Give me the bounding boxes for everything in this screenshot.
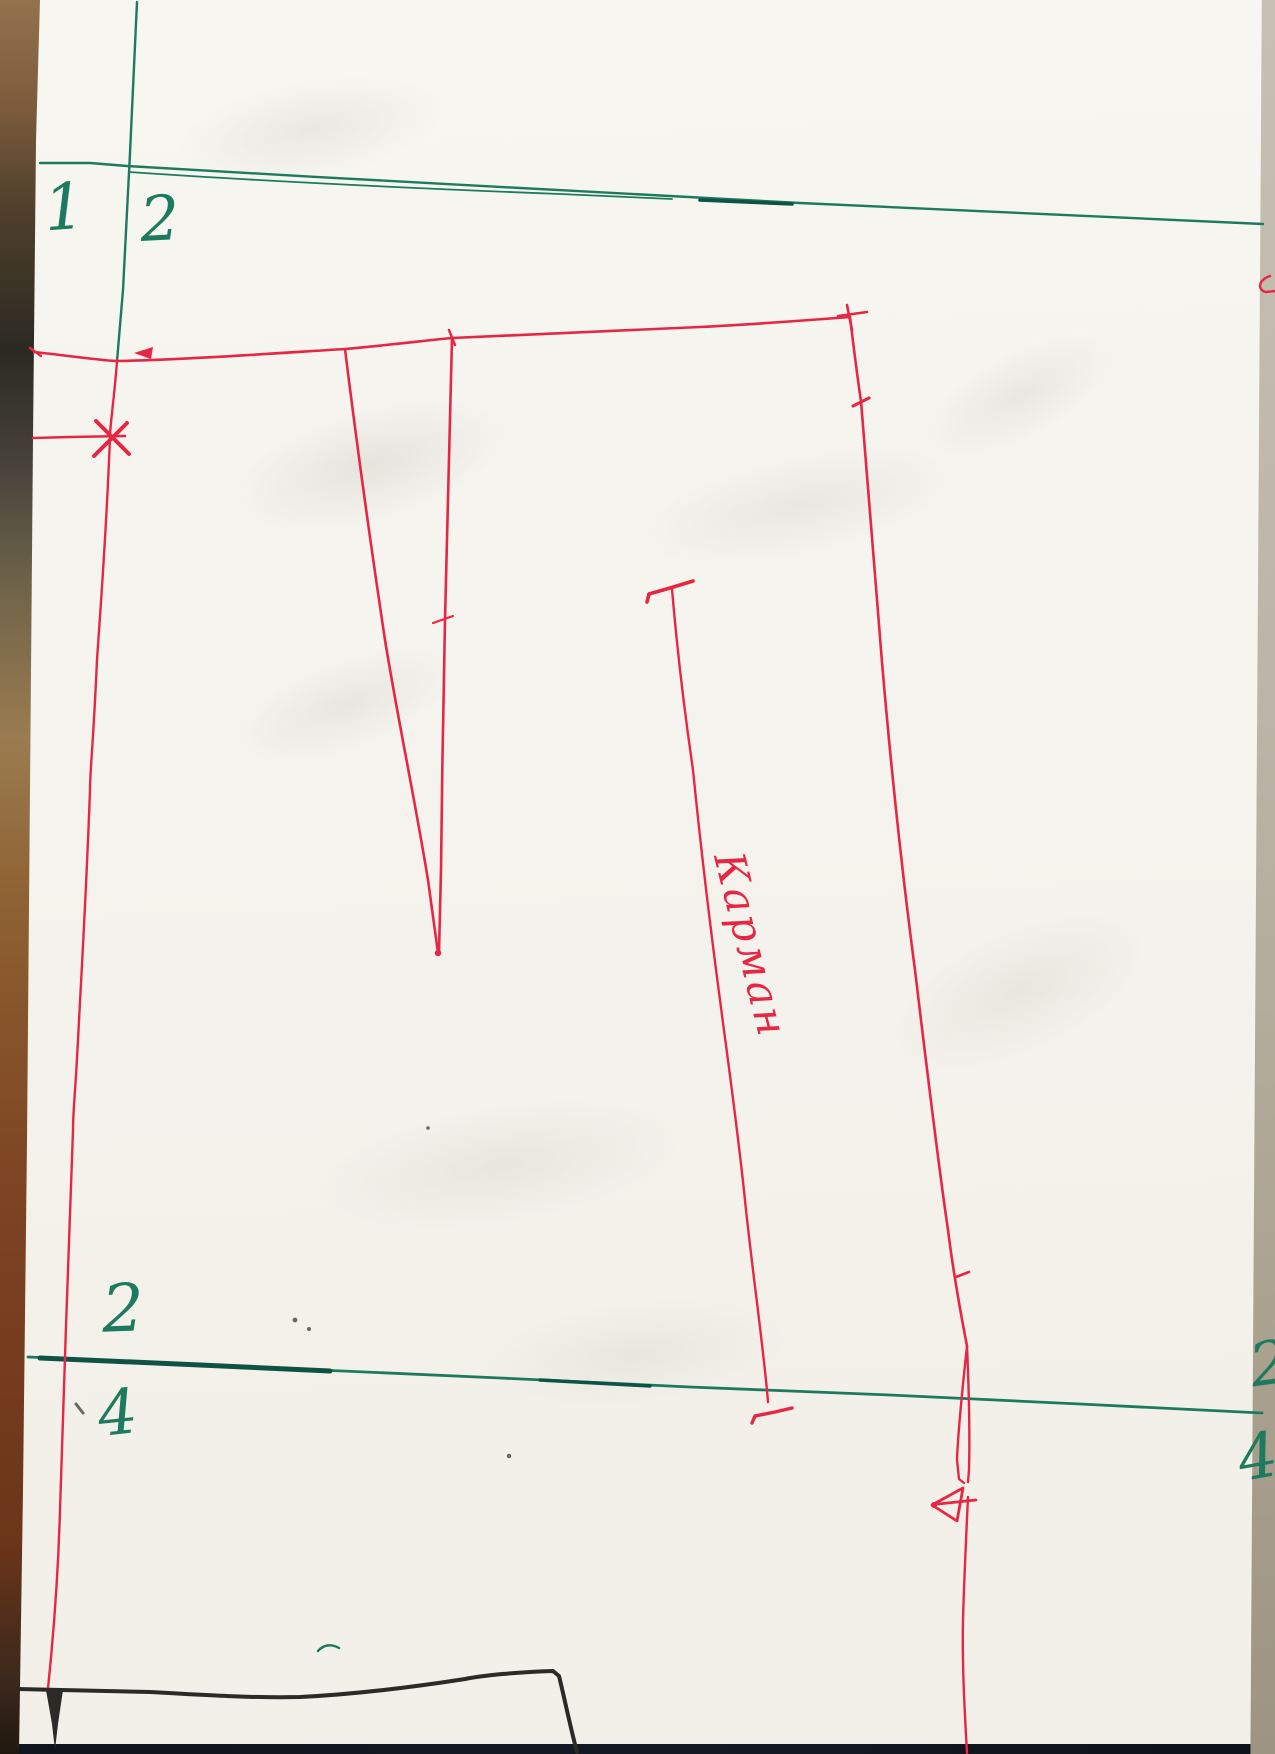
side-seam-correction-loop	[957, 1346, 967, 1483]
hem-line-black	[18, 1671, 577, 1752]
waist-line-arrow-mark	[134, 347, 153, 359]
scanned-pattern-sheet: 1 2 2 4 2 4 Карман	[0, 0, 1275, 1754]
ink-speck	[293, 1318, 298, 1323]
ink-speck	[307, 1327, 311, 1331]
dart-right-line	[439, 338, 452, 953]
waist-line	[34, 317, 850, 361]
grid-top-line	[40, 163, 1263, 224]
side-seam-right-tick-lower	[956, 1272, 969, 1277]
ink-speck	[426, 1126, 430, 1130]
grid-top-line-overdraw	[700, 200, 792, 204]
ink-speck	[507, 1454, 511, 1458]
grain-arrow-tip	[931, 1502, 937, 1508]
grid-vertical-line	[117, 2, 137, 361]
pocket-line-bottom-bar	[752, 1408, 792, 1423]
side-seam-left	[48, 362, 117, 1688]
grid-number-1: 1	[42, 175, 87, 242]
grid-top-line-double	[129, 172, 672, 199]
dart-line-tick	[433, 616, 453, 623]
edge-red-curl	[1260, 276, 1275, 292]
grain-arrow	[932, 1488, 976, 1521]
corner-tick-horizontal	[838, 312, 867, 316]
dart-point	[435, 950, 441, 956]
pattern-drawing	[0, 0, 1275, 1754]
side-seam-right-lower	[963, 1346, 970, 1753]
green-scribble-mark	[318, 1645, 339, 1651]
grid-bottom-line-overdraw	[40, 1358, 330, 1371]
pocket-line-top-bar	[647, 581, 693, 602]
grid-number-4-bottom-left: 4	[95, 1380, 141, 1446]
dart-left-leg	[345, 349, 438, 953]
hem-notch	[46, 1690, 63, 1750]
ink-speck-tick	[76, 1404, 83, 1413]
grid-number-2-bottom-left: 2	[101, 1275, 145, 1342]
side-seam-right	[850, 317, 967, 1346]
grid-number-2-top: 2	[138, 187, 181, 251]
